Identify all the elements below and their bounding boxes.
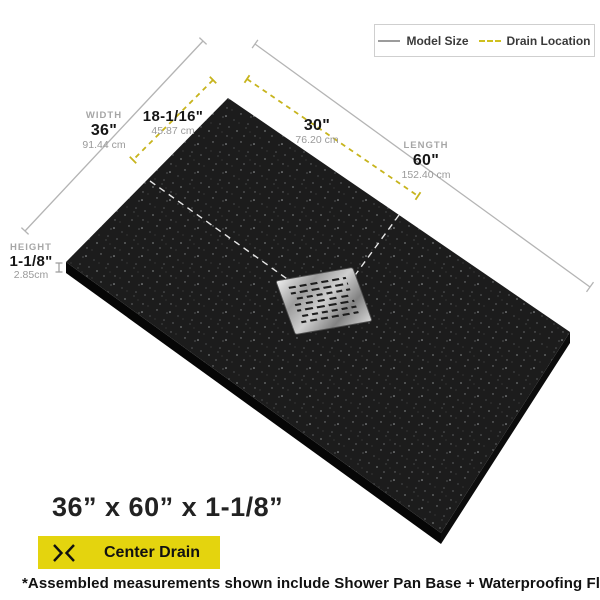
drain-offset-length-metric: 76.20 cm [283,135,351,147]
center-drain-badge: Center Drain [38,536,220,569]
footnote-text: *Assembled measurements shown include Sh… [22,575,600,592]
drain-offset-width-label: 18-1/16" 45.87 cm [134,109,212,138]
length-name: LENGTH [387,141,465,152]
drain-offset-length-value: 30" [283,117,351,135]
height-dimension-label: HEIGHT 1-1/8" 2.85cm [2,243,60,282]
model-size-line-icon [378,40,400,42]
drain-offset-width-metric: 45.87 cm [134,126,212,138]
height-metric: 2.85cm [2,270,60,282]
width-name: WIDTH [72,111,136,122]
length-value: 60" [387,152,465,170]
product-dimension-diagram: Model Size Drain Location WIDTH 36" 91.4… [0,0,600,600]
size-title: 36” x 60” x 1-1/8” [52,492,283,523]
legend-item-drain-location: Drain Location [479,34,591,48]
drain-location-dash-icon [479,40,501,42]
legend-item-model-size: Model Size [378,34,468,48]
legend-box: Model Size Drain Location [374,24,595,57]
length-metric: 152.40 cm [387,170,465,182]
drain-offset-length-label: 30" 76.20 cm [283,117,351,147]
center-drain-label: Center Drain [104,544,200,562]
height-value: 1-1/8" [2,254,60,271]
width-dimension-label: WIDTH 36" 91.44 cm [72,111,136,151]
drain-offset-width-value: 18-1/16" [134,109,212,126]
center-drain-icon [51,542,77,564]
width-value: 36" [72,122,136,140]
legend-model-size-label: Model Size [406,34,468,48]
length-dimension-label: LENGTH 60" 152.40 cm [387,141,465,181]
legend-drain-location-label: Drain Location [507,34,591,48]
width-metric: 91.44 cm [72,140,136,152]
